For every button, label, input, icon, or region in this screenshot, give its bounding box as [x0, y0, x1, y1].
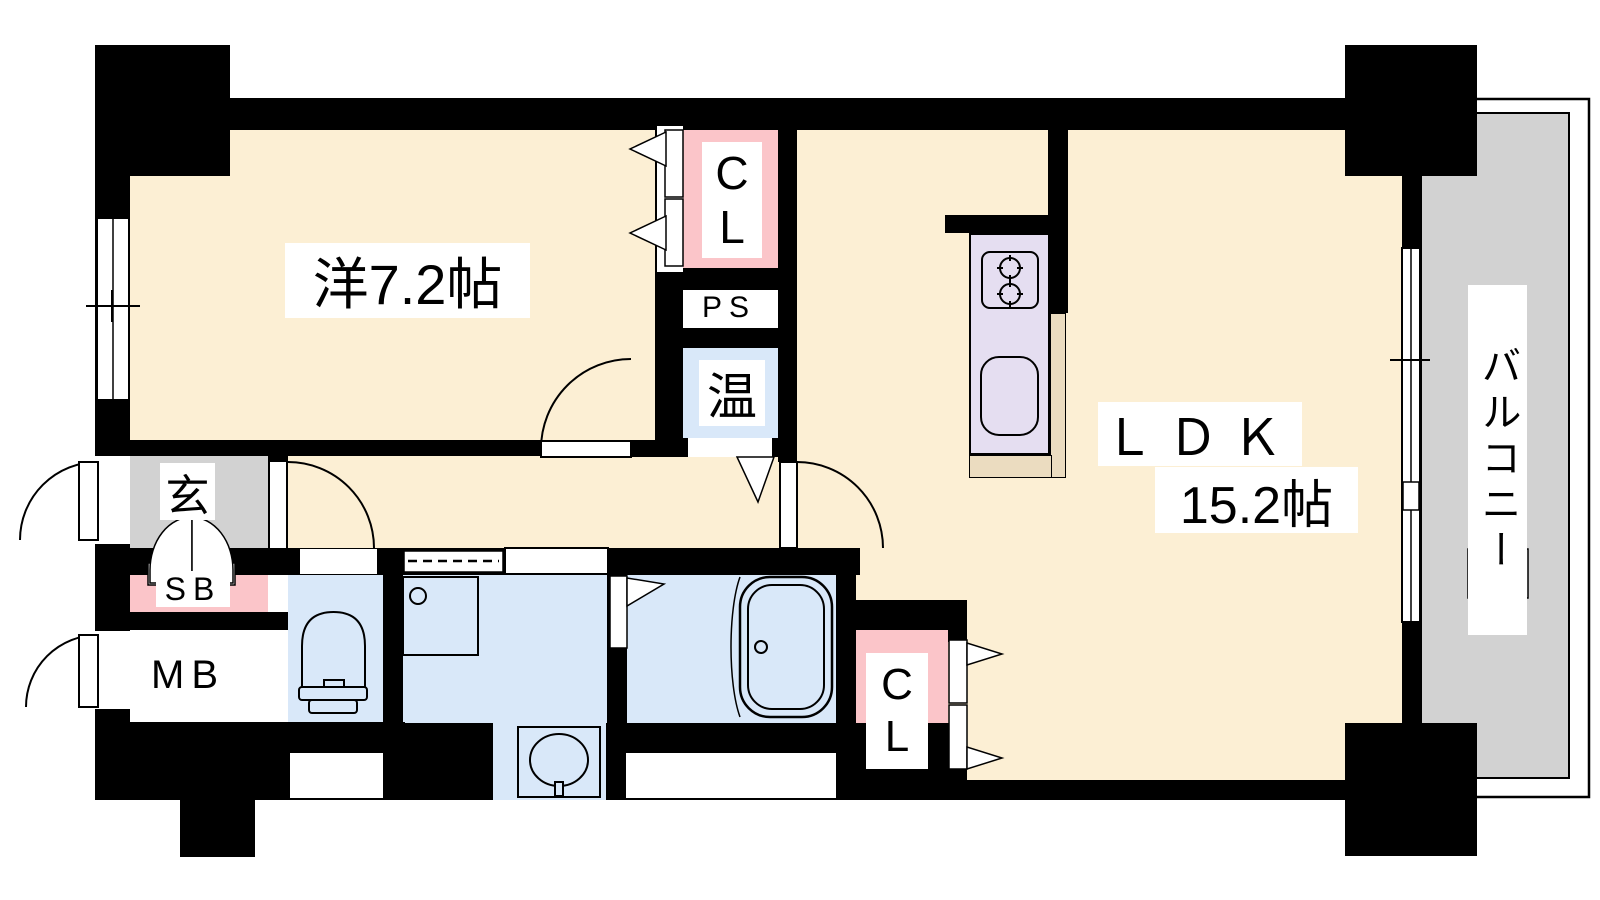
closet-lower-corner-top: [948, 628, 967, 642]
western-room-label: 洋7.2帖: [285, 243, 530, 318]
vent-under-toilet: [290, 753, 383, 798]
closet-upper-door-opening: [657, 126, 683, 272]
bathroom-floor: [627, 557, 856, 725]
water-heater-door-panel: [688, 438, 772, 457]
ps-heater-divider: [683, 328, 778, 348]
pillar-top-right: [1345, 45, 1477, 176]
top-wall: [95, 98, 1420, 130]
kitchen-counter: [969, 233, 1050, 455]
closet-column-right-wall: [778, 98, 797, 462]
floor-plan: 洋7.2帖 ＬＤＫ 15.2帖 バルコニー CL PS 温 玄 SB MB CL: [0, 0, 1600, 900]
toilet-door-opening: [300, 549, 377, 574]
corridor-floor: [288, 447, 797, 557]
western-room-bottom-wall: [95, 440, 541, 456]
toilet-right-wall: [383, 548, 403, 725]
washer-bump-floor: [492, 723, 606, 800]
entrance-label: 玄: [160, 463, 215, 520]
pillar-top-left: [95, 45, 230, 176]
pillar-bottom-left: [180, 750, 255, 857]
pipe-space-label: PS: [686, 291, 772, 325]
closet-upper-label: CL: [702, 142, 762, 258]
meter-box-door-opening: [95, 631, 130, 709]
closet-lower-top-wall: [836, 600, 967, 630]
closet-lower-label: CL: [866, 653, 928, 769]
ldk-size-label: 15.2帖: [1155, 467, 1358, 533]
shoe-box-label: SB: [156, 571, 230, 607]
kitchen-right-wall: [1048, 98, 1068, 313]
ldk-name-label: ＬＤＫ: [1098, 402, 1302, 466]
closet-upper-label-text: CL: [713, 146, 751, 255]
pillar-bottom-right: [1345, 723, 1477, 856]
washroom-right-wall: [607, 548, 627, 725]
vent-under-bath: [626, 753, 836, 798]
bottom-wall-right: [967, 780, 1402, 800]
water-heater-label: 温: [699, 360, 765, 426]
entrance-right-wall: [268, 450, 288, 555]
western-room-bottom-stub: [631, 440, 683, 457]
kitchen-counter-edge-bottom: [969, 455, 1052, 478]
balcony-window-opening: [1402, 248, 1420, 622]
washroom-floor: [403, 557, 627, 725]
bottom-wall-mid: [403, 723, 493, 800]
closet-lower-label-text: CL: [879, 659, 915, 763]
meter-box-label: MB: [146, 652, 230, 698]
entrance-door-icon: [20, 462, 98, 540]
closet-ps-divider: [683, 268, 778, 290]
balcony-label: バルコニー: [1468, 285, 1527, 635]
entrance-door-opening: [95, 456, 130, 544]
meter-box-door-icon: [26, 635, 98, 707]
kitchen-counter-edge-right: [1050, 313, 1066, 478]
sb-mb-divider: [117, 612, 288, 630]
